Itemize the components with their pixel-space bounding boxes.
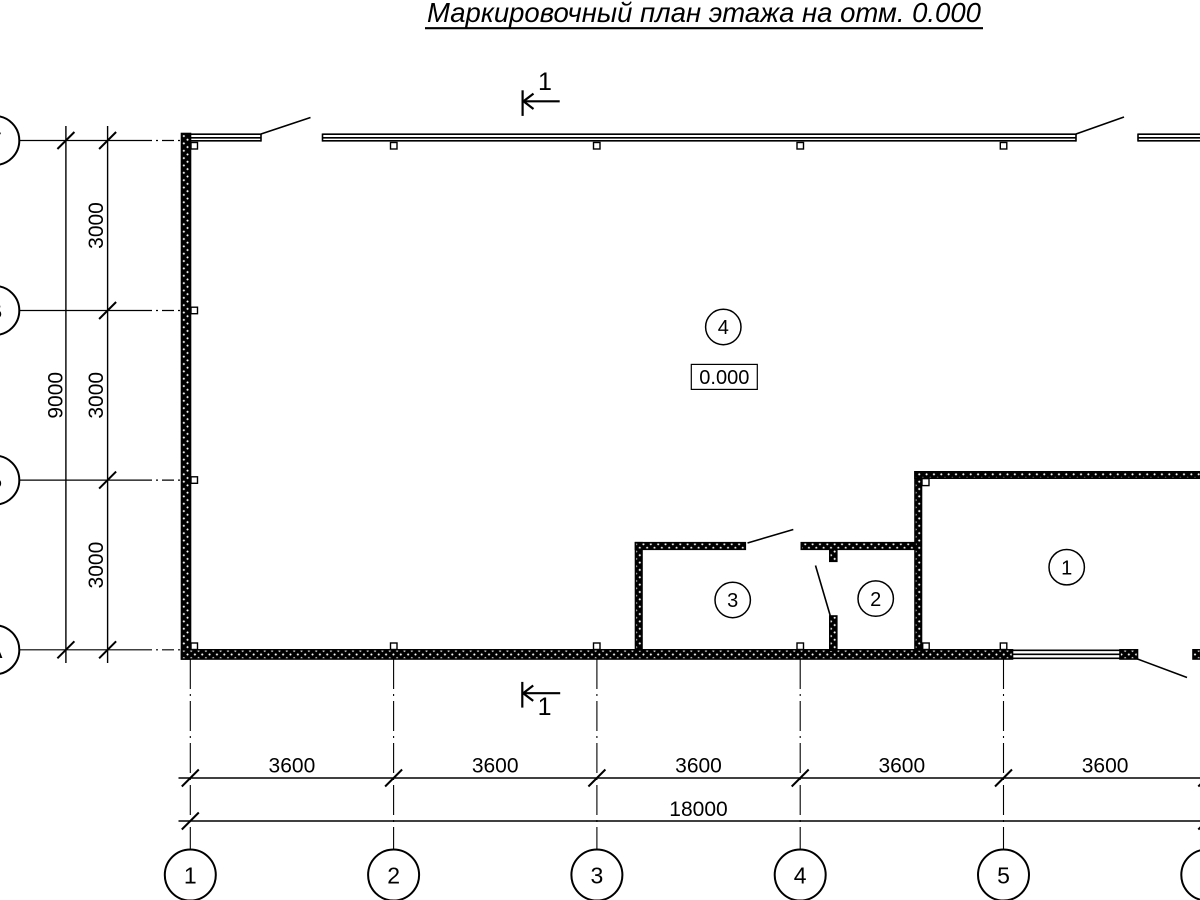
svg-text:3000: 3000 xyxy=(85,542,108,589)
svg-text:3000: 3000 xyxy=(85,202,108,249)
svg-text:3600: 3600 xyxy=(472,755,519,778)
svg-text:Маркировочный план этажа на от: Маркировочный план этажа на отм. 0.000 xyxy=(427,0,982,28)
svg-text:1: 1 xyxy=(538,68,552,96)
svg-text:18000: 18000 xyxy=(669,798,727,821)
svg-text:2: 2 xyxy=(387,862,400,888)
svg-text:3600: 3600 xyxy=(878,755,925,778)
svg-text:Б: Б xyxy=(0,467,2,493)
svg-text:3: 3 xyxy=(727,590,738,612)
svg-text:1: 1 xyxy=(184,862,197,888)
svg-text:3600: 3600 xyxy=(269,755,316,778)
svg-text:3000: 3000 xyxy=(85,372,108,419)
svg-text:4: 4 xyxy=(718,317,729,339)
svg-text:2: 2 xyxy=(870,589,881,611)
svg-text:1: 1 xyxy=(538,693,552,721)
svg-text:5: 5 xyxy=(997,862,1010,888)
svg-text:3: 3 xyxy=(591,862,604,888)
svg-text:1: 1 xyxy=(1061,557,1072,579)
svg-text:0.000: 0.000 xyxy=(699,367,749,389)
svg-text:3600: 3600 xyxy=(1082,755,1129,778)
svg-text:В: В xyxy=(0,298,2,324)
svg-text:4: 4 xyxy=(794,862,807,888)
svg-text:3600: 3600 xyxy=(675,755,722,778)
svg-text:9000: 9000 xyxy=(45,372,68,419)
